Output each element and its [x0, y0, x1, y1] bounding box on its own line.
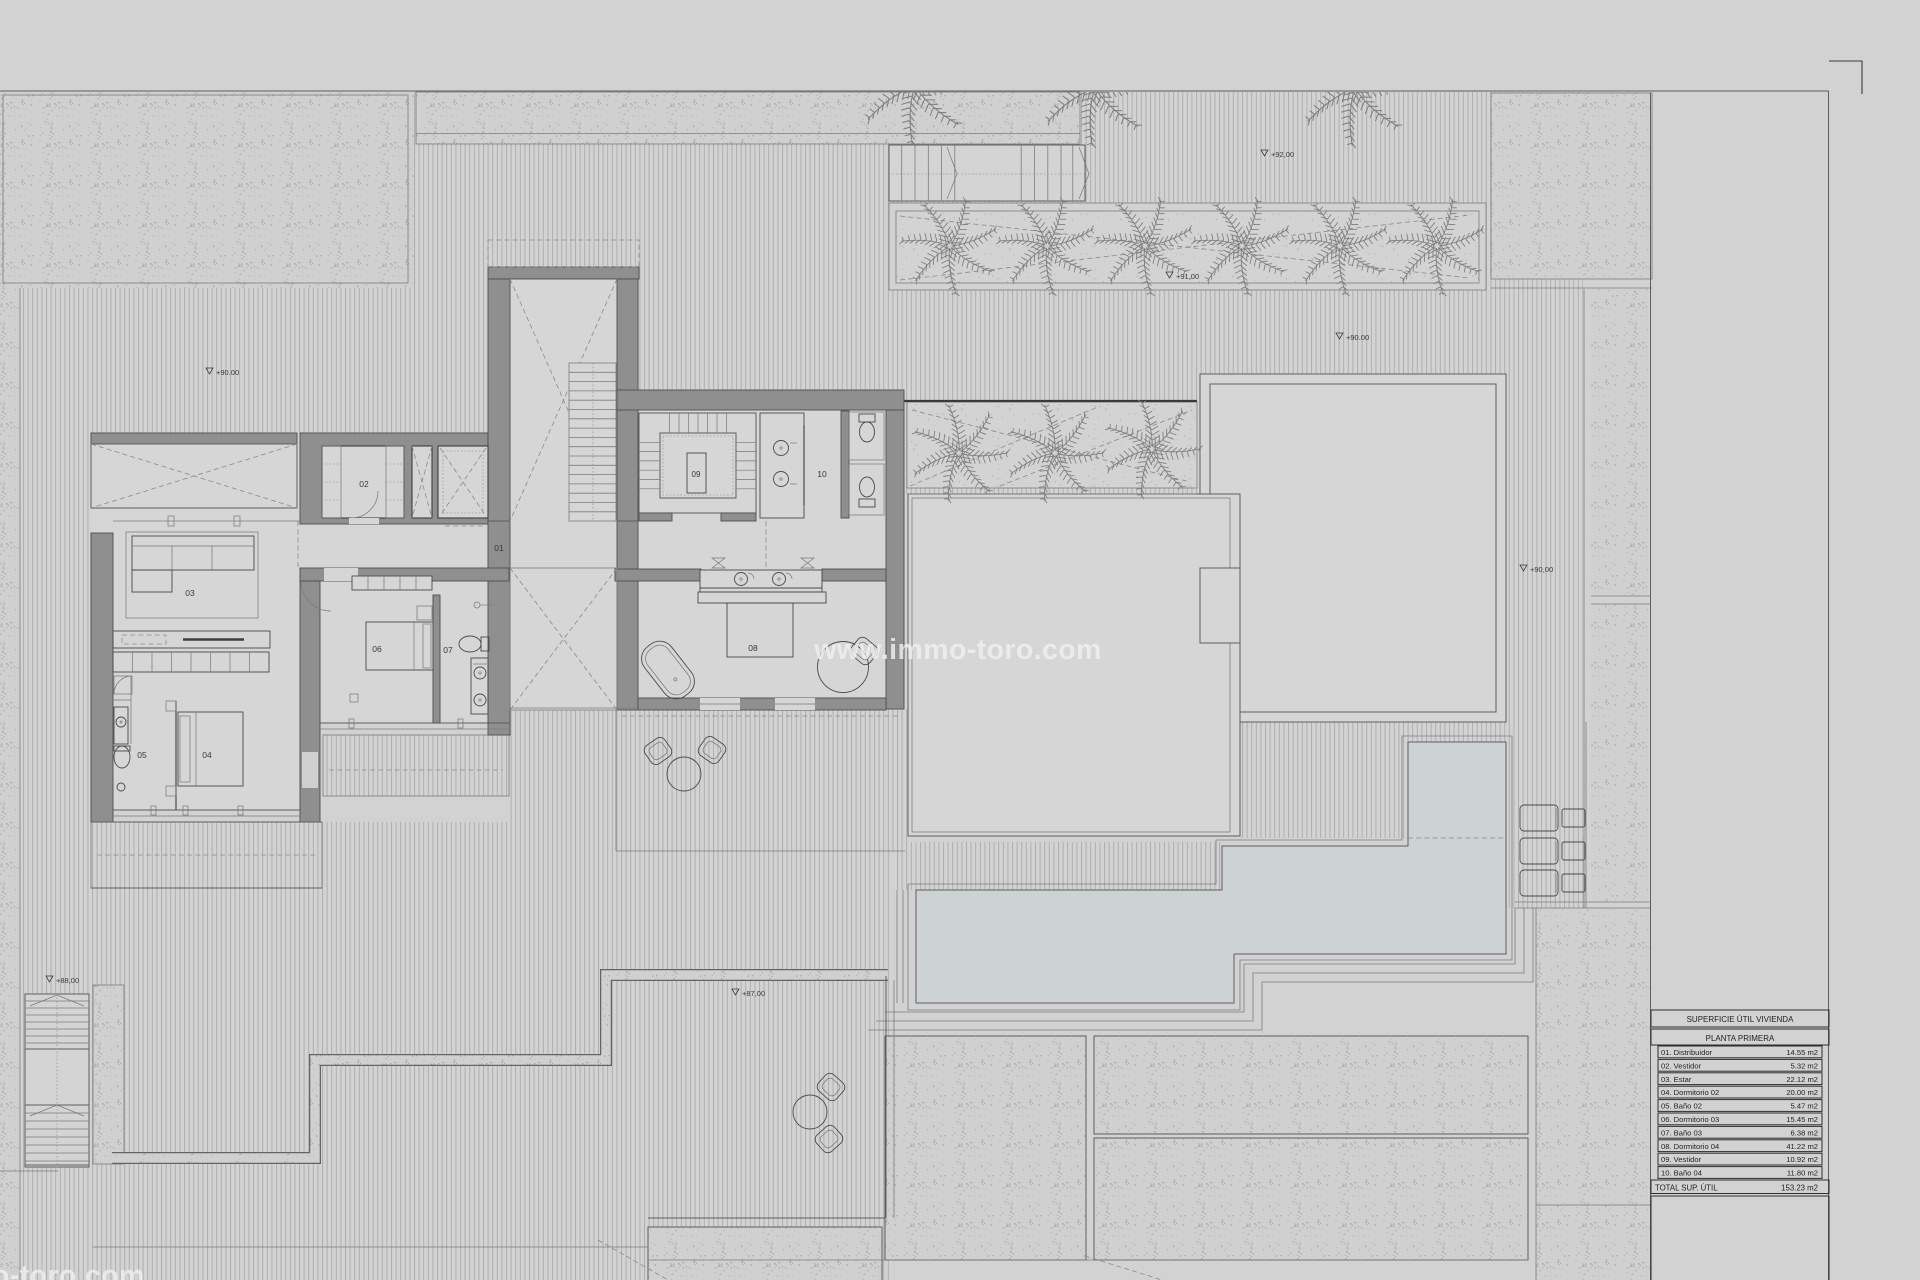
svg-text:06: 06 [372, 644, 382, 654]
svg-text:04. Dormitorio 02: 04. Dormitorio 02 [1661, 1088, 1719, 1097]
svg-text:10: 10 [817, 469, 827, 479]
svg-text:02. Vestidor: 02. Vestidor [1661, 1061, 1702, 1070]
svg-text:153.23 m2: 153.23 m2 [1781, 1184, 1818, 1193]
svg-text:07. Baño 03: 07. Baño 03 [1661, 1128, 1702, 1137]
svg-text:20.00 m2: 20.00 m2 [1786, 1088, 1818, 1097]
svg-text:09: 09 [692, 470, 701, 479]
svg-text:04: 04 [202, 750, 212, 760]
svg-text:01. Distribuidor: 01. Distribuidor [1661, 1048, 1713, 1057]
svg-text:www.immo-toro.com: www.immo-toro.com [0, 1260, 145, 1280]
svg-text:10.92 m2: 10.92 m2 [1786, 1155, 1818, 1164]
svg-text:www.immo-toro.com: www.immo-toro.com [813, 634, 1102, 666]
svg-text:06. Dormitorio 03: 06. Dormitorio 03 [1661, 1115, 1719, 1124]
svg-text:+90,00: +90,00 [1530, 565, 1553, 574]
svg-text:+90.00: +90.00 [1346, 333, 1369, 342]
svg-text:PLANTA PRIMERA: PLANTA PRIMERA [1706, 1034, 1775, 1043]
svg-text:08: 08 [748, 643, 758, 653]
svg-text:+88,00: +88,00 [56, 976, 79, 985]
svg-text:07: 07 [443, 645, 453, 655]
svg-text:03: 03 [185, 588, 195, 598]
svg-text:05: 05 [137, 750, 147, 760]
svg-text:+90.00: +90.00 [216, 368, 239, 377]
svg-text:01: 01 [494, 543, 504, 553]
svg-text:09. Vestidor: 09. Vestidor [1661, 1155, 1702, 1164]
svg-text:+87,00: +87,00 [742, 989, 765, 998]
svg-text:05. Baño 02: 05. Baño 02 [1661, 1102, 1702, 1111]
svg-text:5.47 m2: 5.47 m2 [1791, 1102, 1818, 1111]
svg-text:15.45 m2: 15.45 m2 [1786, 1115, 1818, 1124]
svg-text:22.12 m2: 22.12 m2 [1786, 1075, 1818, 1084]
svg-text:03. Estar: 03. Estar [1661, 1075, 1692, 1084]
svg-text:11.80 m2: 11.80 m2 [1787, 1169, 1818, 1178]
svg-text:TOTAL SUP. ÚTIL: TOTAL SUP. ÚTIL [1655, 1184, 1718, 1193]
svg-text:5.32 m2: 5.32 m2 [1791, 1061, 1818, 1070]
svg-text:SUPERFICIE ÚTIL VIVIENDA: SUPERFICIE ÚTIL VIVIENDA [1687, 1015, 1795, 1024]
svg-text:6.38 m2: 6.38 m2 [1791, 1128, 1818, 1137]
svg-text:+91,00: +91,00 [1176, 272, 1199, 281]
svg-text:08. Dormitorio 04: 08. Dormitorio 04 [1661, 1142, 1719, 1151]
svg-text:14.55 m2: 14.55 m2 [1786, 1048, 1818, 1057]
svg-text:+92,00: +92,00 [1271, 150, 1294, 159]
svg-text:02: 02 [359, 479, 369, 489]
svg-text:10. Baño 04: 10. Baño 04 [1661, 1169, 1702, 1178]
svg-text:41.22 m2: 41.22 m2 [1786, 1142, 1818, 1151]
